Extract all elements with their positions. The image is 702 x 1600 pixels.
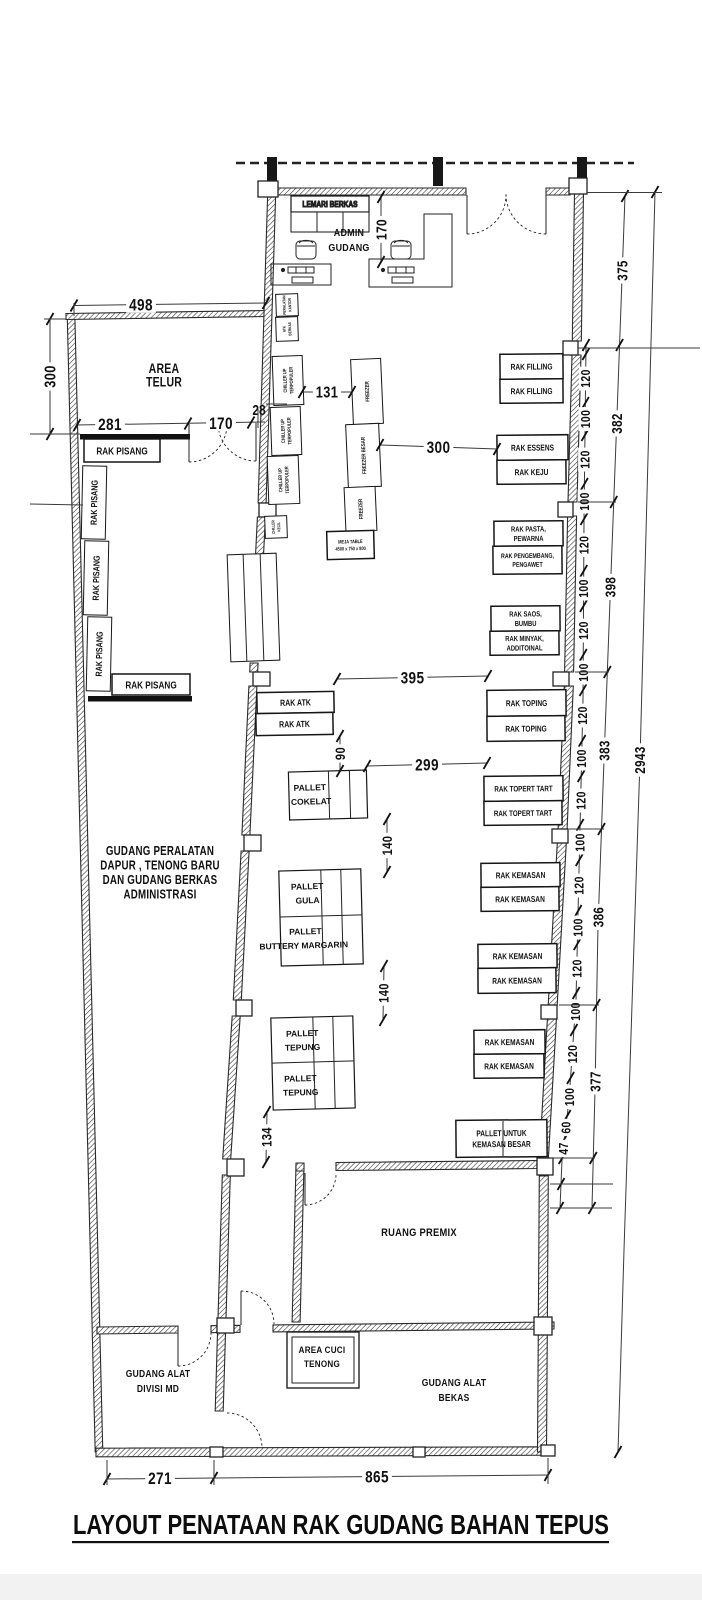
svg-text:377: 377	[587, 1071, 604, 1092]
svg-text:PEWARNA: PEWARNA	[514, 535, 544, 543]
svg-text:PALLET: PALLET	[291, 881, 324, 892]
svg-text:DAN GUDANG BERKAS: DAN GUDANG BERKAS	[103, 874, 218, 888]
svg-text:RAK KEJU: RAK KEJU	[515, 467, 549, 477]
svg-text:DIVISI MD: DIVISI MD	[137, 1383, 179, 1394]
svg-text:TEPUNG: TEPUNG	[285, 1042, 321, 1053]
svg-text:CHILLER UP: CHILLER UP	[277, 468, 283, 492]
svg-text:RUANG PREMIX: RUANG PREMIX	[381, 1227, 457, 1239]
svg-text:RAK PISANG: RAK PISANG	[94, 631, 105, 676]
svg-text:RAK PISANG: RAK PISANG	[125, 678, 176, 690]
svg-text:RAK KEMASAN: RAK KEMASAN	[484, 1061, 534, 1071]
svg-text:RAK ATK: RAK ATK	[280, 698, 311, 709]
svg-text:100: 100	[573, 833, 587, 852]
svg-text:GUDANG ALAT: GUDANG ALAT	[126, 1368, 191, 1379]
svg-text:ADMINISTRASI: ADMINISTRASI	[123, 888, 196, 902]
svg-text:120: 120	[578, 450, 592, 469]
svg-text:RAK FILLING: RAK FILLING	[511, 386, 553, 396]
svg-text:RAK FILLING: RAK FILLING	[511, 362, 553, 372]
svg-text:GULA: GULA	[295, 895, 319, 906]
svg-text:TELUR: TELUR	[146, 374, 182, 390]
svg-text:300: 300	[42, 365, 60, 388]
svg-text:RAK KEMASAN: RAK KEMASAN	[485, 1037, 535, 1047]
svg-text:BUMBU: BUMBU	[515, 620, 537, 628]
svg-text:RAK PENGEMBANG,: RAK PENGEMBANG,	[501, 552, 554, 560]
svg-text:2943: 2943	[632, 746, 649, 773]
svg-text:CHILLER UP: CHILLER UP	[280, 419, 286, 443]
svg-text:BEKAS: BEKAS	[439, 1392, 470, 1403]
svg-text:RAK TOPERT TART: RAK TOPERT TART	[494, 784, 553, 793]
svg-text:KEMASAN BESAR: KEMASAN BESAR	[472, 1139, 531, 1150]
svg-text:CHILLER: CHILLER	[271, 520, 276, 534]
svg-text:ADDITOINAL: ADDITOINAL	[507, 645, 543, 653]
svg-text:120: 120	[577, 621, 591, 640]
svg-text:RAK PISANG: RAK PISANG	[89, 480, 100, 525]
svg-text:120: 120	[570, 959, 584, 978]
svg-text:120: 120	[576, 706, 590, 725]
svg-text:140: 140	[376, 983, 391, 1003]
svg-text:47: 47	[557, 1142, 571, 1154]
svg-text:RAK KEMASAN: RAK KEMASAN	[493, 951, 543, 961]
svg-text:271: 271	[148, 1470, 172, 1489]
svg-text:120: 120	[574, 791, 588, 810]
svg-text:PENGAWET: PENGAWET	[512, 561, 543, 569]
svg-text:RAK ESSENS: RAK ESSENS	[511, 443, 554, 453]
svg-text:382: 382	[609, 413, 626, 434]
svg-text:RAK TOPERT TART: RAK TOPERT TART	[494, 809, 553, 818]
svg-text:120: 120	[577, 536, 591, 555]
svg-text:GUDANG: GUDANG	[328, 242, 369, 254]
svg-text:ATK: ATK	[282, 326, 287, 333]
svg-text:RAK KEMASAN: RAK KEMASAN	[495, 894, 545, 904]
svg-text:PERALATAN: PERALATAN	[282, 295, 287, 315]
svg-text:PALLET UNTUK: PALLET UNTUK	[476, 1128, 527, 1138]
svg-text:RAK MINYAK,: RAK MINYAK,	[505, 635, 544, 643]
svg-text:300: 300	[427, 439, 451, 458]
svg-text:ADMIN: ADMIN	[334, 227, 364, 239]
svg-text:100: 100	[575, 749, 589, 768]
svg-text:FREEZER: FREEZER	[358, 498, 366, 519]
svg-text:RAK PASTA,: RAK PASTA,	[511, 526, 546, 534]
svg-text:LEMARI BERKAS: LEMARI BERKAS	[302, 199, 357, 209]
svg-text:FREEZER: FREEZER	[364, 381, 372, 402]
svg-text:386: 386	[590, 907, 607, 928]
svg-text:BERKAS: BERKAS	[288, 322, 293, 336]
svg-text:134: 134	[259, 1127, 274, 1147]
svg-text:PALLET: PALLET	[293, 782, 326, 793]
svg-text:TERPOPULER: TERPOPULER	[286, 417, 292, 445]
svg-text:100: 100	[577, 579, 591, 598]
svg-text:170: 170	[373, 219, 390, 240]
svg-text:28: 28	[252, 402, 266, 419]
svg-text:RAK TOPING: RAK TOPING	[506, 698, 548, 708]
svg-text:299: 299	[415, 756, 439, 775]
svg-text:395: 395	[401, 669, 425, 688]
svg-text:398: 398	[602, 577, 619, 598]
svg-text:131: 131	[316, 384, 339, 402]
svg-text:100: 100	[571, 918, 585, 937]
svg-text:281: 281	[98, 416, 122, 435]
svg-text:865: 865	[365, 1468, 389, 1487]
svg-text:4500 x 750 x 800: 4500 x 750 x 800	[335, 545, 366, 551]
svg-text:120: 120	[566, 1045, 580, 1064]
svg-text:100: 100	[563, 1088, 577, 1107]
svg-text:RAK KEMASAN: RAK KEMASAN	[492, 976, 542, 986]
svg-text:GUDANG PERALATAN: GUDANG PERALATAN	[106, 845, 214, 859]
svg-text:TENONG: TENONG	[304, 1358, 340, 1369]
svg-text:AREA CUCI: AREA CUCI	[299, 1344, 346, 1355]
svg-text:120: 120	[579, 369, 593, 388]
svg-text:RAK KEMASAN: RAK KEMASAN	[496, 870, 546, 880]
svg-text:LAYOUT PENATAAN RAK GUDANG BAH: LAYOUT PENATAAN RAK GUDANG BAHAN TEPUS	[73, 1510, 609, 1541]
svg-text:TEPUNG: TEPUNG	[283, 1087, 319, 1098]
svg-text:MEJA TABLE: MEJA TABLE	[338, 539, 363, 545]
svg-text:100: 100	[579, 410, 593, 429]
svg-text:RAK ATK: RAK ATK	[279, 719, 310, 730]
svg-text:PALLET: PALLET	[284, 1073, 317, 1084]
svg-text:60: 60	[559, 1121, 573, 1133]
svg-text:TERPOPULER: TERPOPULER	[288, 366, 294, 394]
svg-text:170: 170	[209, 415, 233, 434]
svg-text:120: 120	[572, 876, 586, 895]
svg-text:GUDANG ALAT: GUDANG ALAT	[422, 1377, 487, 1388]
svg-text:375: 375	[614, 260, 631, 281]
svg-text:90: 90	[333, 747, 348, 760]
svg-text:PALLET: PALLET	[289, 926, 322, 937]
svg-text:498: 498	[129, 296, 153, 315]
svg-text:CHILLER UP: CHILLER UP	[282, 369, 288, 393]
svg-text:RAK TOPING: RAK TOPING	[505, 724, 547, 734]
svg-text:COKELAT: COKELAT	[291, 796, 333, 807]
svg-text:DAPUR , TENONG BARU: DAPUR , TENONG BARU	[100, 859, 220, 873]
svg-text:TERPOPULER: TERPOPULER	[284, 466, 290, 494]
svg-text:RAK PISANG: RAK PISANG	[91, 555, 102, 600]
svg-text:RAK PISANG: RAK PISANG	[96, 444, 147, 456]
svg-text:140: 140	[380, 836, 395, 856]
svg-text:KANTOR: KANTOR	[288, 298, 293, 312]
svg-text:383: 383	[596, 740, 613, 761]
svg-text:RAK SAOS,: RAK SAOS,	[509, 611, 542, 619]
svg-text:PALLET: PALLET	[286, 1028, 319, 1039]
svg-text:KECIL: KECIL	[277, 521, 282, 531]
